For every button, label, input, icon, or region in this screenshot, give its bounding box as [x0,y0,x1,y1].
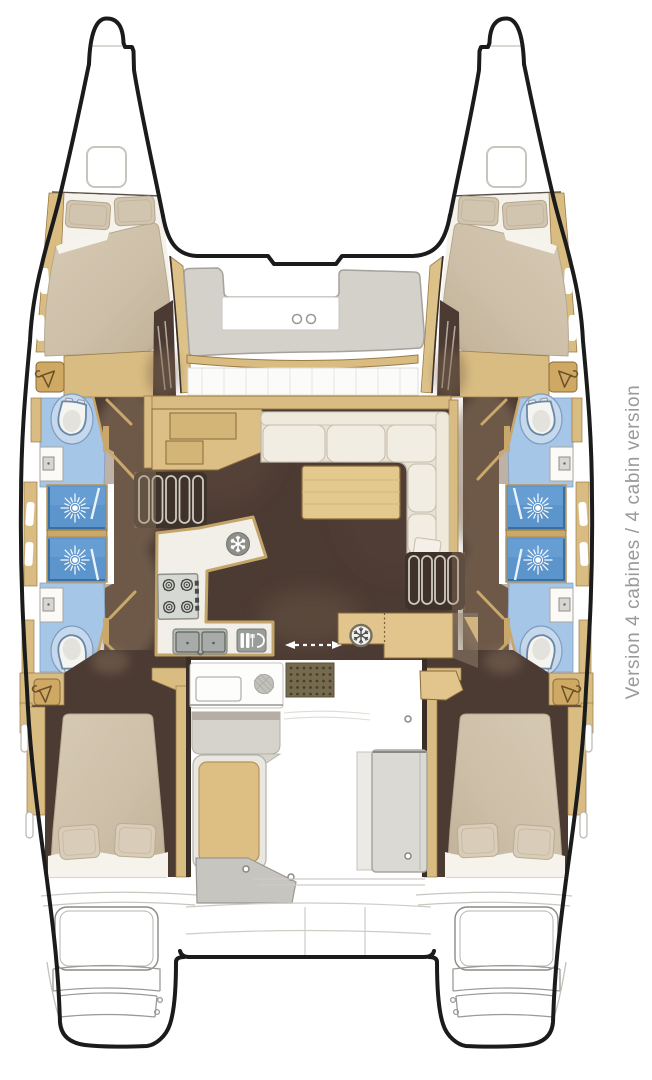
svg-text:Version 4 cabines / 4 cabin ve: Version 4 cabines / 4 cabin version [623,385,644,700]
